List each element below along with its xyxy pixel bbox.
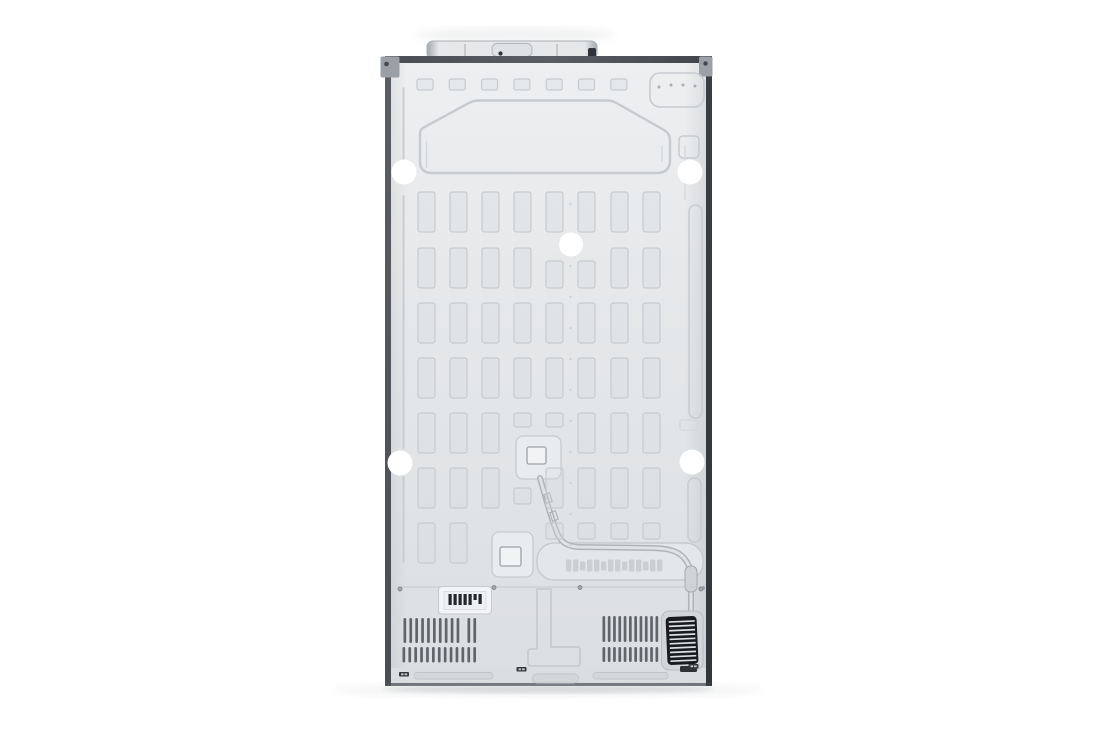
vent-slot-right-bottom xyxy=(613,647,616,662)
stiffener-slot xyxy=(418,413,435,453)
stamp-mark xyxy=(622,562,627,571)
stiffener-slot xyxy=(418,523,435,563)
stiffener-slot xyxy=(418,248,435,288)
grille-rib xyxy=(669,621,695,622)
bottom-fastener-slit xyxy=(519,668,522,670)
vent-slot-right-top xyxy=(640,616,643,642)
stiffener-slot xyxy=(611,523,628,539)
stiffener-slot xyxy=(482,303,499,343)
bottom-fastener-slit xyxy=(401,673,404,675)
weld-dot xyxy=(569,265,571,267)
stiffener-slot xyxy=(482,248,499,288)
weld-dot xyxy=(569,203,571,205)
upper-mount-hole xyxy=(527,447,546,464)
weld-dot xyxy=(569,513,571,515)
pipe-connector xyxy=(685,566,697,592)
vent-slot-right-bottom xyxy=(656,647,659,662)
weld-dot xyxy=(569,482,571,484)
white-hole-plug xyxy=(559,233,583,257)
vent-slot-left-bottom xyxy=(408,647,411,663)
stiffener-slot xyxy=(418,303,435,343)
stiffener-slot xyxy=(643,192,660,232)
white-hole-plug xyxy=(388,451,413,476)
bracket-screw-right xyxy=(703,61,707,65)
stiffener-slot xyxy=(450,523,467,563)
stiffener-slot xyxy=(482,192,499,232)
bottom-fastener-slit xyxy=(405,673,408,675)
stiffener-slot xyxy=(450,248,467,288)
vent-slot-left-bottom xyxy=(420,647,423,663)
white-hole-plug xyxy=(392,160,417,185)
stiffener-slot xyxy=(418,358,435,398)
vent-slot-right-bottom xyxy=(650,647,653,662)
stiffener-slot xyxy=(578,303,595,343)
stiffener-slot xyxy=(643,523,660,539)
vent-slot-left-top-a xyxy=(457,618,460,643)
stamp-mark xyxy=(615,560,620,572)
weld-dot xyxy=(569,544,571,546)
vent-slot-right-bottom xyxy=(608,647,611,662)
vent-slot-left-top-a xyxy=(451,618,454,643)
stiffener-slot xyxy=(611,468,628,508)
stiffener-slot xyxy=(418,192,435,232)
stamp-mark xyxy=(566,560,571,572)
stamp-mark xyxy=(573,560,578,572)
stamp-mark xyxy=(657,560,662,572)
grille-rib xyxy=(670,643,696,644)
vent-slot-left-bottom xyxy=(414,647,417,663)
refrigerator-back-photo xyxy=(0,0,1100,730)
stiffener-slot xyxy=(643,248,660,288)
stiffener-slot xyxy=(578,523,595,539)
vent-slot-left-bottom xyxy=(426,647,429,663)
corner-bracket-left xyxy=(381,57,400,78)
bottom-fastener xyxy=(517,667,527,672)
top-stiffener-slot xyxy=(449,79,465,90)
bottom-fastener-slit xyxy=(522,668,525,670)
stiffener-slot xyxy=(450,192,467,232)
stiffener-slot xyxy=(450,303,467,343)
top-stiffener-slot xyxy=(579,79,595,90)
stiffener-slot xyxy=(514,248,531,288)
vent-slot-right-top xyxy=(629,616,632,642)
vent-slot-right-top xyxy=(650,616,653,642)
stiffener-slot xyxy=(546,303,563,343)
grille-body xyxy=(665,616,698,665)
top-cover-screw xyxy=(498,51,502,55)
stiffener-slot xyxy=(514,488,531,504)
floor-shadow-outer xyxy=(333,683,763,697)
stamp-mark xyxy=(636,560,641,572)
bottom-fastener-slit xyxy=(691,665,694,667)
stiffener-slot xyxy=(450,413,467,453)
stamp-mark xyxy=(608,560,613,572)
vent-slot-right-bottom xyxy=(640,647,643,662)
product-photo-stage xyxy=(0,0,1100,730)
vent-slot-left-top-a xyxy=(421,618,424,643)
grille-rotated xyxy=(665,616,698,665)
top-cover-inner-section xyxy=(492,44,532,57)
stiffener-slot xyxy=(643,303,660,343)
weld-dot xyxy=(569,451,571,453)
stamp-mark xyxy=(601,562,606,571)
stamp-mark xyxy=(650,560,655,572)
vent-slot-left-top-a xyxy=(415,618,418,643)
vent-slot-right-top xyxy=(613,616,616,642)
vent-slot-right-top xyxy=(608,616,611,642)
vent-slot-right-top xyxy=(603,616,606,642)
stiffener-slot xyxy=(546,358,563,398)
barcode-bar xyxy=(459,594,462,605)
barcode-bar xyxy=(464,594,467,605)
bracket-screw-left xyxy=(384,62,389,67)
stiffener-slot xyxy=(482,468,499,508)
stiffener-slot xyxy=(546,192,563,232)
stiffener-slot xyxy=(643,468,660,508)
vent-slot-right-bottom xyxy=(603,647,606,662)
grille-rib xyxy=(669,625,695,626)
vent-slot-right-bottom xyxy=(629,647,632,662)
top-stiffener-slot xyxy=(417,79,433,90)
stiffener-slot xyxy=(450,358,467,398)
stiffener-slot xyxy=(578,358,595,398)
vent-slot-right-bottom xyxy=(618,647,621,662)
vent-slot-left-bottom xyxy=(432,647,435,663)
rating-label xyxy=(439,587,492,615)
weld-dot xyxy=(569,296,571,298)
stamp-mark xyxy=(643,562,648,571)
stiffener-slot xyxy=(482,413,499,453)
stiffener-slot xyxy=(546,468,563,508)
stiffener-slot xyxy=(578,413,595,453)
drain-grille xyxy=(662,611,704,672)
left-edge xyxy=(385,56,391,686)
weld-dot xyxy=(569,389,571,391)
top-stiffener-slot xyxy=(611,79,627,90)
grille-rib xyxy=(669,630,695,631)
white-hole-plug xyxy=(678,160,703,185)
vent-slot-right-bottom xyxy=(645,647,648,662)
stiffener-slot xyxy=(514,303,531,343)
barcode-bar xyxy=(474,594,477,600)
stamp-mark xyxy=(594,560,599,572)
barcode-bar xyxy=(469,594,472,605)
vent-slot-left-top-a xyxy=(433,618,436,643)
grille-rib xyxy=(670,656,696,657)
grille-rib xyxy=(670,647,696,648)
bottom-fastener xyxy=(689,664,699,669)
stiffener-slot xyxy=(546,413,563,427)
top-stiffener-slot xyxy=(546,79,562,90)
corner-bracket-right xyxy=(699,57,713,77)
vent-slot-left-top-a xyxy=(427,618,430,643)
stiffener-slot xyxy=(643,358,660,398)
stiffener-slot xyxy=(611,358,628,398)
vent-slot-right-top xyxy=(645,616,648,642)
stiffener-slot xyxy=(611,192,628,232)
vent-slot-right-top xyxy=(624,616,627,642)
stiffener-slot xyxy=(611,303,628,343)
vent-slot-right-top xyxy=(634,616,637,642)
vent-slot-right-bottom xyxy=(624,647,627,662)
vent-slot-left-bottom xyxy=(450,647,453,663)
stiffener-slot xyxy=(611,413,628,453)
grille-rib xyxy=(670,651,696,652)
stamp-mark xyxy=(587,560,592,572)
barcode-bar xyxy=(479,594,482,604)
stiffener-slot xyxy=(514,413,531,427)
vent-slot-left-top-a xyxy=(404,618,407,643)
vent-slot-left-bottom xyxy=(462,647,465,663)
top-stiffener-slot xyxy=(482,79,498,90)
stiffener-slot xyxy=(514,358,531,398)
stiffener-slot xyxy=(546,261,563,288)
vent-slot-right-top xyxy=(618,616,621,642)
vent-slot-left-top-a xyxy=(439,618,442,643)
top-stiffener-slot xyxy=(514,79,530,90)
vent-slot-left-bottom xyxy=(456,647,459,663)
stiffener-slot xyxy=(578,468,595,508)
white-hole-plug xyxy=(680,450,705,475)
bottom-fastener-slit xyxy=(694,665,697,667)
weld-dot xyxy=(569,420,571,422)
grille-rib xyxy=(669,638,695,639)
top-edge xyxy=(385,56,712,64)
stiffener-slot xyxy=(643,413,660,453)
vent-slot-left-bottom xyxy=(473,647,476,663)
grille-rib xyxy=(670,660,696,661)
stamp-mark xyxy=(629,560,634,572)
barcode-bar xyxy=(454,594,457,605)
stiffener-slot xyxy=(578,261,595,288)
stiffener-slot xyxy=(514,192,531,232)
stamp-mark xyxy=(580,562,585,571)
barcode-bar xyxy=(449,594,452,605)
stiffener-slot xyxy=(546,523,563,539)
vent-slot-left-bottom xyxy=(438,647,441,663)
vent-slot-left-top-a xyxy=(409,618,412,643)
vent-slot-right-top xyxy=(656,616,659,642)
vent-slot-left-top-a xyxy=(445,618,448,643)
lower-mount-hole xyxy=(500,547,521,566)
weld-dot xyxy=(569,327,571,329)
vent-slot-left-top-b xyxy=(473,618,476,643)
vent-slot-left-bottom xyxy=(467,647,470,663)
vent-slot-left-bottom xyxy=(403,647,406,663)
weld-dot xyxy=(569,358,571,360)
stiffener-slot xyxy=(418,468,435,508)
grille-rib xyxy=(669,634,695,635)
stiffener-slot xyxy=(611,248,628,288)
vent-slot-right-bottom xyxy=(634,647,637,662)
bottom-fastener xyxy=(399,672,409,677)
vent-slot-left-top-b xyxy=(468,618,471,643)
right-edge xyxy=(706,56,712,686)
stiffener-slot xyxy=(578,192,595,232)
stiffener-slot xyxy=(482,358,499,398)
vent-slot-left-bottom xyxy=(444,647,447,663)
stiffener-slot xyxy=(450,468,467,508)
